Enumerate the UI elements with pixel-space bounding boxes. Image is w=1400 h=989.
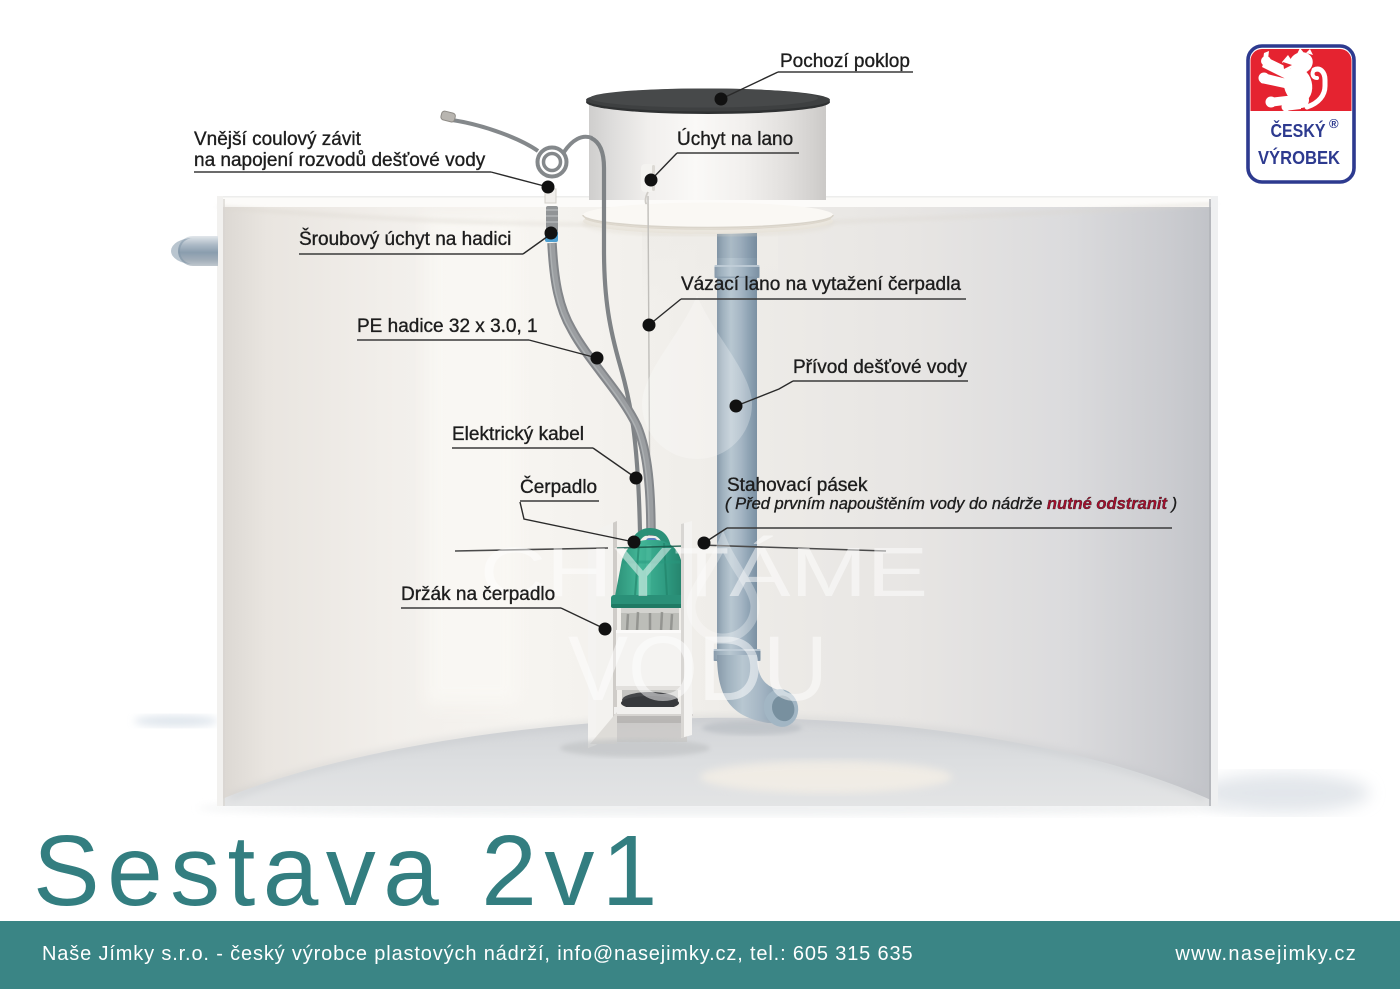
svg-text:ČESKÝ: ČESKÝ [1271, 120, 1326, 141]
svg-text:VÝROBEK: VÝROBEK [1258, 147, 1340, 168]
svg-text:®: ® [1329, 116, 1339, 131]
